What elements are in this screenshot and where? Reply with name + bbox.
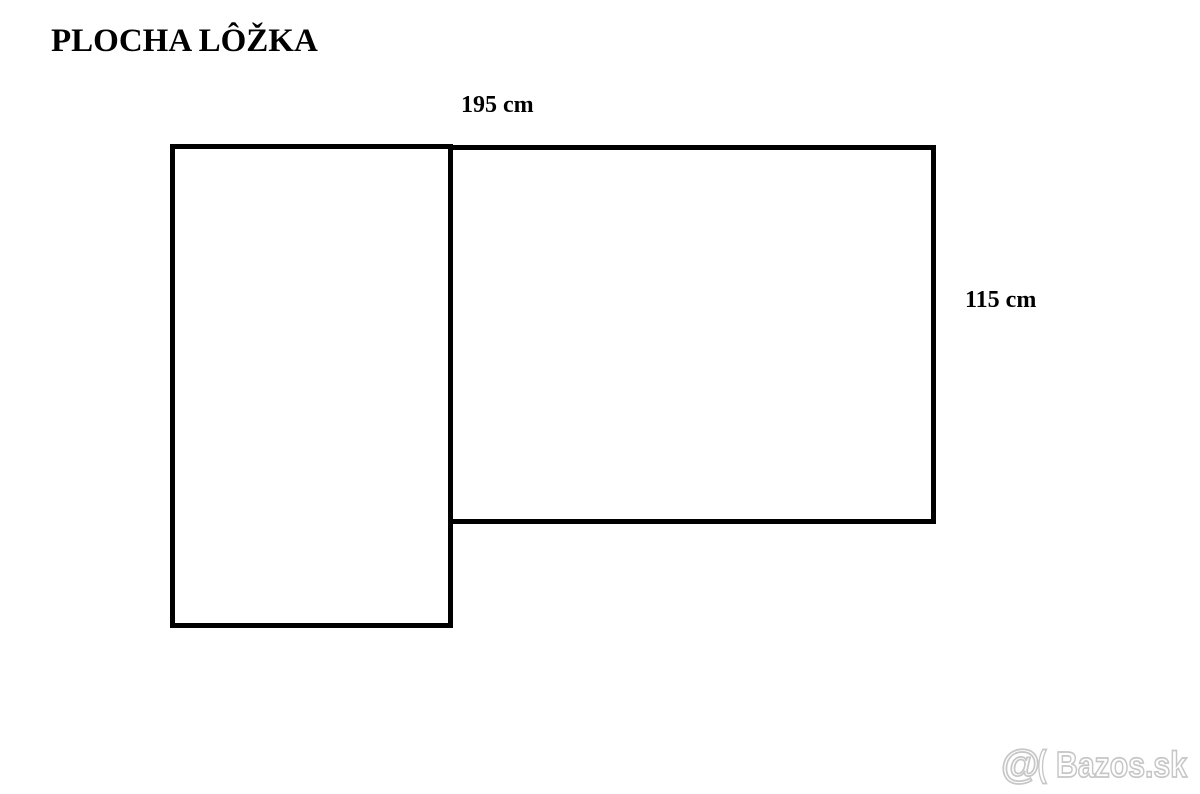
svg-text:Bazos.sk: Bazos.sk xyxy=(1056,744,1188,785)
svg-text:(: ( xyxy=(1038,743,1047,784)
svg-text:@: @ xyxy=(1001,743,1040,787)
